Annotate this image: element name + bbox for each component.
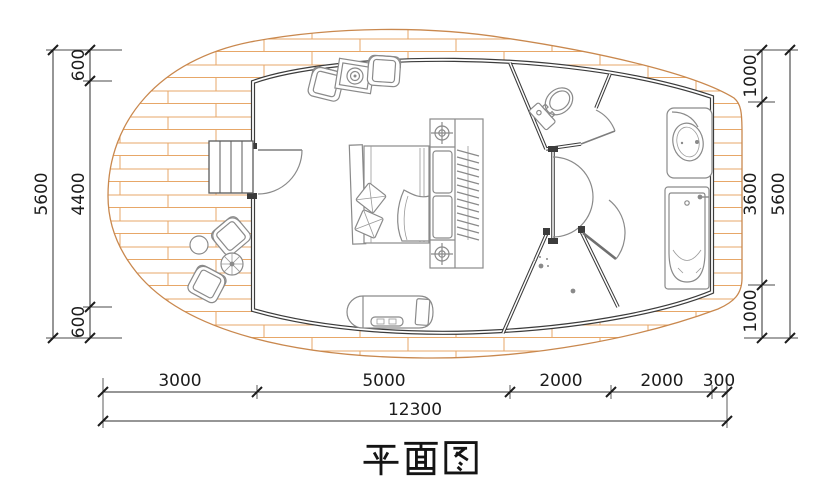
- dim-bottom-seg-4: 300: [703, 371, 735, 391]
- armchair: [367, 55, 401, 87]
- sink-vanity: [667, 108, 712, 178]
- floor-drain: [571, 289, 576, 294]
- dim-bottom-seg-2: 2000: [539, 371, 582, 391]
- faucet: [695, 140, 699, 144]
- dim-left-seg-0: 600: [69, 49, 89, 81]
- dim-bottom-total: 12300: [388, 400, 442, 420]
- dim-right-seg-2: 1000: [741, 289, 761, 332]
- floor-plan-page: 平面图: [0, 0, 837, 496]
- glyph-mian: [404, 443, 437, 473]
- floor-plan-canvas: 5600 600 4400 600 1000 3600 1000 5600 30…: [0, 0, 837, 496]
- bathtub: [665, 187, 709, 289]
- dim-right: 1000 3600 1000 5600: [741, 45, 798, 343]
- dim-bottom: 3000 5000 2000 2000 300 12300: [98, 371, 735, 428]
- parasol-table: [221, 253, 243, 275]
- glyph-ping: [364, 446, 399, 475]
- bed: [349, 145, 429, 244]
- side-table: [190, 236, 208, 254]
- dim-left-seg-1: 4400: [69, 172, 89, 215]
- dim-bottom-seg-3: 2000: [640, 371, 683, 391]
- page-title: [364, 443, 477, 476]
- dim-bottom-seg-1: 5000: [362, 371, 405, 391]
- glyph-tu: [446, 443, 476, 473]
- dim-left-seg-2: 600: [69, 306, 89, 338]
- wardrobe: [430, 119, 483, 268]
- blanket: [398, 190, 429, 241]
- dim-bottom-seg-0: 3000: [158, 371, 201, 391]
- dim-right-total: 5600: [769, 172, 789, 215]
- dim-right-seg-0: 1000: [741, 54, 761, 97]
- dim-left-total: 5600: [32, 172, 52, 215]
- daybed: [347, 296, 433, 328]
- dim-right-seg-1: 3600: [741, 172, 761, 215]
- entry-steps: [209, 141, 253, 193]
